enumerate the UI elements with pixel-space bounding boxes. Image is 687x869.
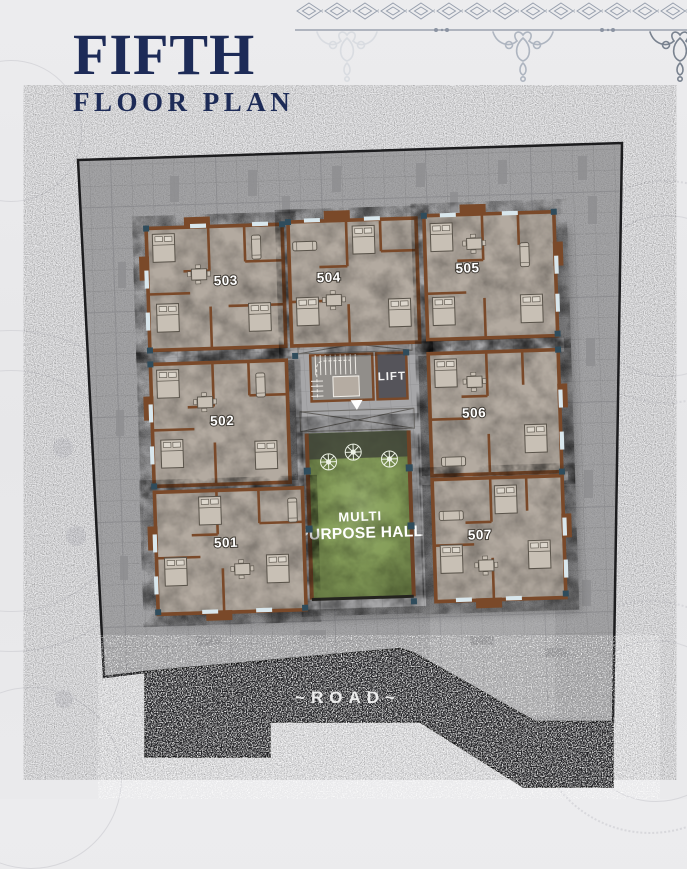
floor-plan-canvas: ~ROAD~ L [0, 0, 687, 799]
road-label: ~ROAD~ [295, 688, 401, 707]
building: LIFT MULTI PURPOSE HALL 503 [138, 201, 581, 624]
bed-icon [524, 424, 547, 453]
bed-icon [494, 485, 517, 514]
page-header: FIFTH FLOOR PLAN [73, 26, 294, 118]
bed-icon [199, 496, 222, 525]
sofa-icon [520, 243, 530, 267]
bed-icon [161, 439, 184, 468]
lift-label: LIFT [378, 370, 407, 383]
bed-icon [152, 234, 175, 263]
bed-icon [255, 441, 278, 470]
unit-504: 504 [288, 218, 420, 346]
unit-501: 501 [154, 488, 306, 615]
unit-503: 503 [146, 224, 286, 350]
unit-505: 505 [424, 212, 558, 340]
lift: LIFT [376, 352, 407, 399]
hall-label-line1: MULTI [338, 508, 382, 524]
bed-icon [520, 294, 543, 323]
sofa-icon [251, 235, 261, 259]
arabesque-pendant-icon [493, 32, 553, 81]
unit-label-501: 501 [214, 535, 238, 551]
bed-icon [528, 540, 551, 569]
unit-label-504: 504 [316, 269, 340, 285]
tree-icon [320, 454, 336, 470]
bed-icon [164, 557, 187, 586]
decorative-border [295, 0, 687, 90]
bed-icon [266, 554, 289, 583]
sofa-icon [439, 511, 463, 521]
sofa-icon [441, 457, 465, 467]
tree-icon [345, 444, 361, 460]
page-subtitle: FLOOR PLAN [73, 87, 294, 118]
bed-icon [432, 297, 455, 326]
diamond-chain-ornament [295, 2, 687, 24]
bed-icon [156, 304, 179, 333]
unit-label-503: 503 [214, 273, 238, 289]
bed-icon [157, 370, 180, 399]
bed-icon [296, 297, 319, 326]
sofa-icon [288, 498, 298, 522]
bed-icon [249, 303, 272, 332]
multi-purpose-hall: MULTI PURPOSE HALL [295, 430, 425, 600]
unit-502: 502 [150, 360, 290, 486]
unit-507: 507 [432, 476, 566, 602]
arabesque-pendant-icon [317, 32, 377, 81]
unit-label-505: 505 [455, 260, 479, 276]
sofa-icon [256, 373, 266, 397]
floor-plan-page: { "header": { "title": "FIFTH", "subtitl… [0, 0, 687, 799]
unit-label-506: 506 [462, 405, 486, 421]
unit-label-507: 507 [468, 527, 492, 543]
bed-icon [434, 359, 457, 388]
arabesque-pendant-icon [650, 32, 687, 81]
unit-label-502: 502 [210, 413, 234, 429]
bed-icon [388, 298, 411, 327]
sofa-icon [293, 241, 317, 251]
bed-icon [352, 225, 375, 254]
unit-506: 506 [428, 350, 562, 476]
bed-icon [430, 223, 453, 252]
tree-icon [381, 451, 397, 467]
page-title: FIFTH [73, 26, 294, 84]
bed-icon [440, 545, 463, 574]
